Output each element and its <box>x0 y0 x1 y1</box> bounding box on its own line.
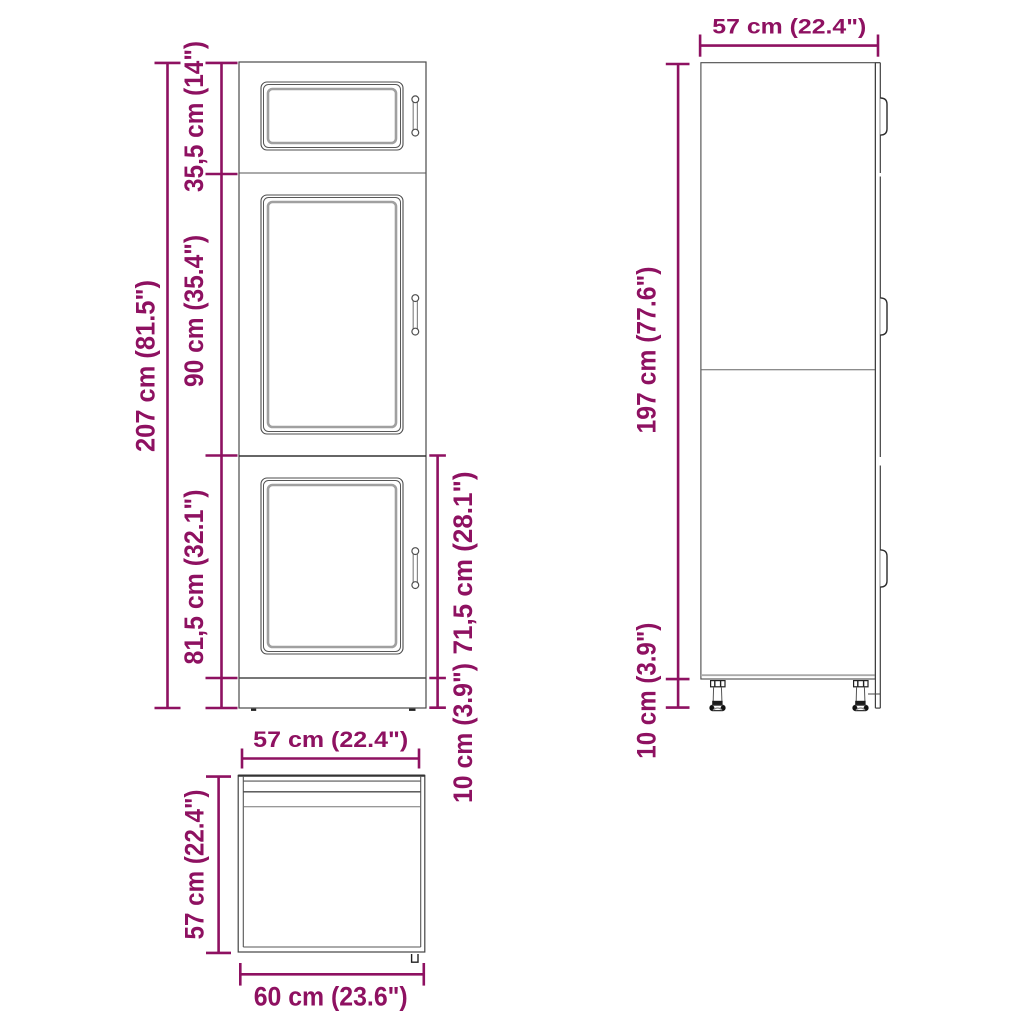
svg-text:10 cm (3.9"): 10 cm (3.9") <box>448 663 478 803</box>
svg-text:57 cm (22.4"): 57 cm (22.4") <box>712 16 866 39</box>
svg-text:57 cm (22.4"): 57 cm (22.4") <box>180 790 210 940</box>
svg-text:71,5 cm (28.1"): 71,5 cm (28.1") <box>448 472 478 655</box>
svg-text:81,5 cm (32.1"): 81,5 cm (32.1") <box>179 490 209 665</box>
svg-text:90 cm (35.4"): 90 cm (35.4") <box>179 235 209 387</box>
svg-text:197 cm (77.6"): 197 cm (77.6") <box>632 267 662 434</box>
svg-text:35,5 cm (14"): 35,5 cm (14") <box>179 41 209 192</box>
svg-text:207 cm (81.5"): 207 cm (81.5") <box>131 280 161 452</box>
svg-text:10 cm (3.9"): 10 cm (3.9") <box>632 623 662 759</box>
svg-text:60 cm (23.6"): 60 cm (23.6") <box>254 982 408 1012</box>
svg-text:57 cm (22.4"): 57 cm (22.4") <box>253 727 408 752</box>
